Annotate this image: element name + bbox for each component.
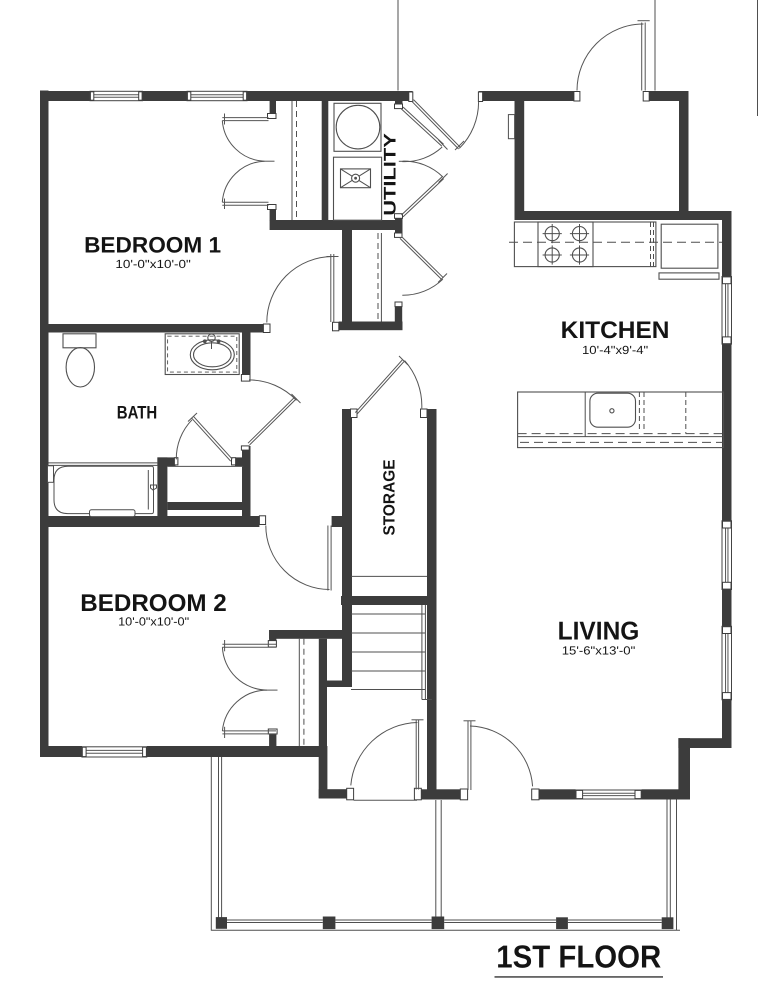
svg-text:10'-0"x10'-0": 10'-0"x10'-0" <box>118 615 189 629</box>
svg-text:KITCHEN: KITCHEN <box>561 317 670 344</box>
svg-text:BEDROOM 1: BEDROOM 1 <box>84 232 221 257</box>
svg-text:UTILITY: UTILITY <box>381 133 400 216</box>
svg-text:1ST FLOOR: 1ST FLOOR <box>496 938 661 974</box>
svg-text:STORAGE: STORAGE <box>381 459 399 535</box>
svg-text:10'-0"x10'-0": 10'-0"x10'-0" <box>115 257 191 271</box>
svg-text:15'-6"x13'-0": 15'-6"x13'-0" <box>562 643 636 657</box>
svg-text:BEDROOM 2: BEDROOM 2 <box>80 590 227 617</box>
svg-text:LIVING: LIVING <box>558 617 640 645</box>
svg-text:10'-4"x9'-4": 10'-4"x9'-4" <box>582 343 648 357</box>
svg-text:BATH: BATH <box>117 402 158 422</box>
